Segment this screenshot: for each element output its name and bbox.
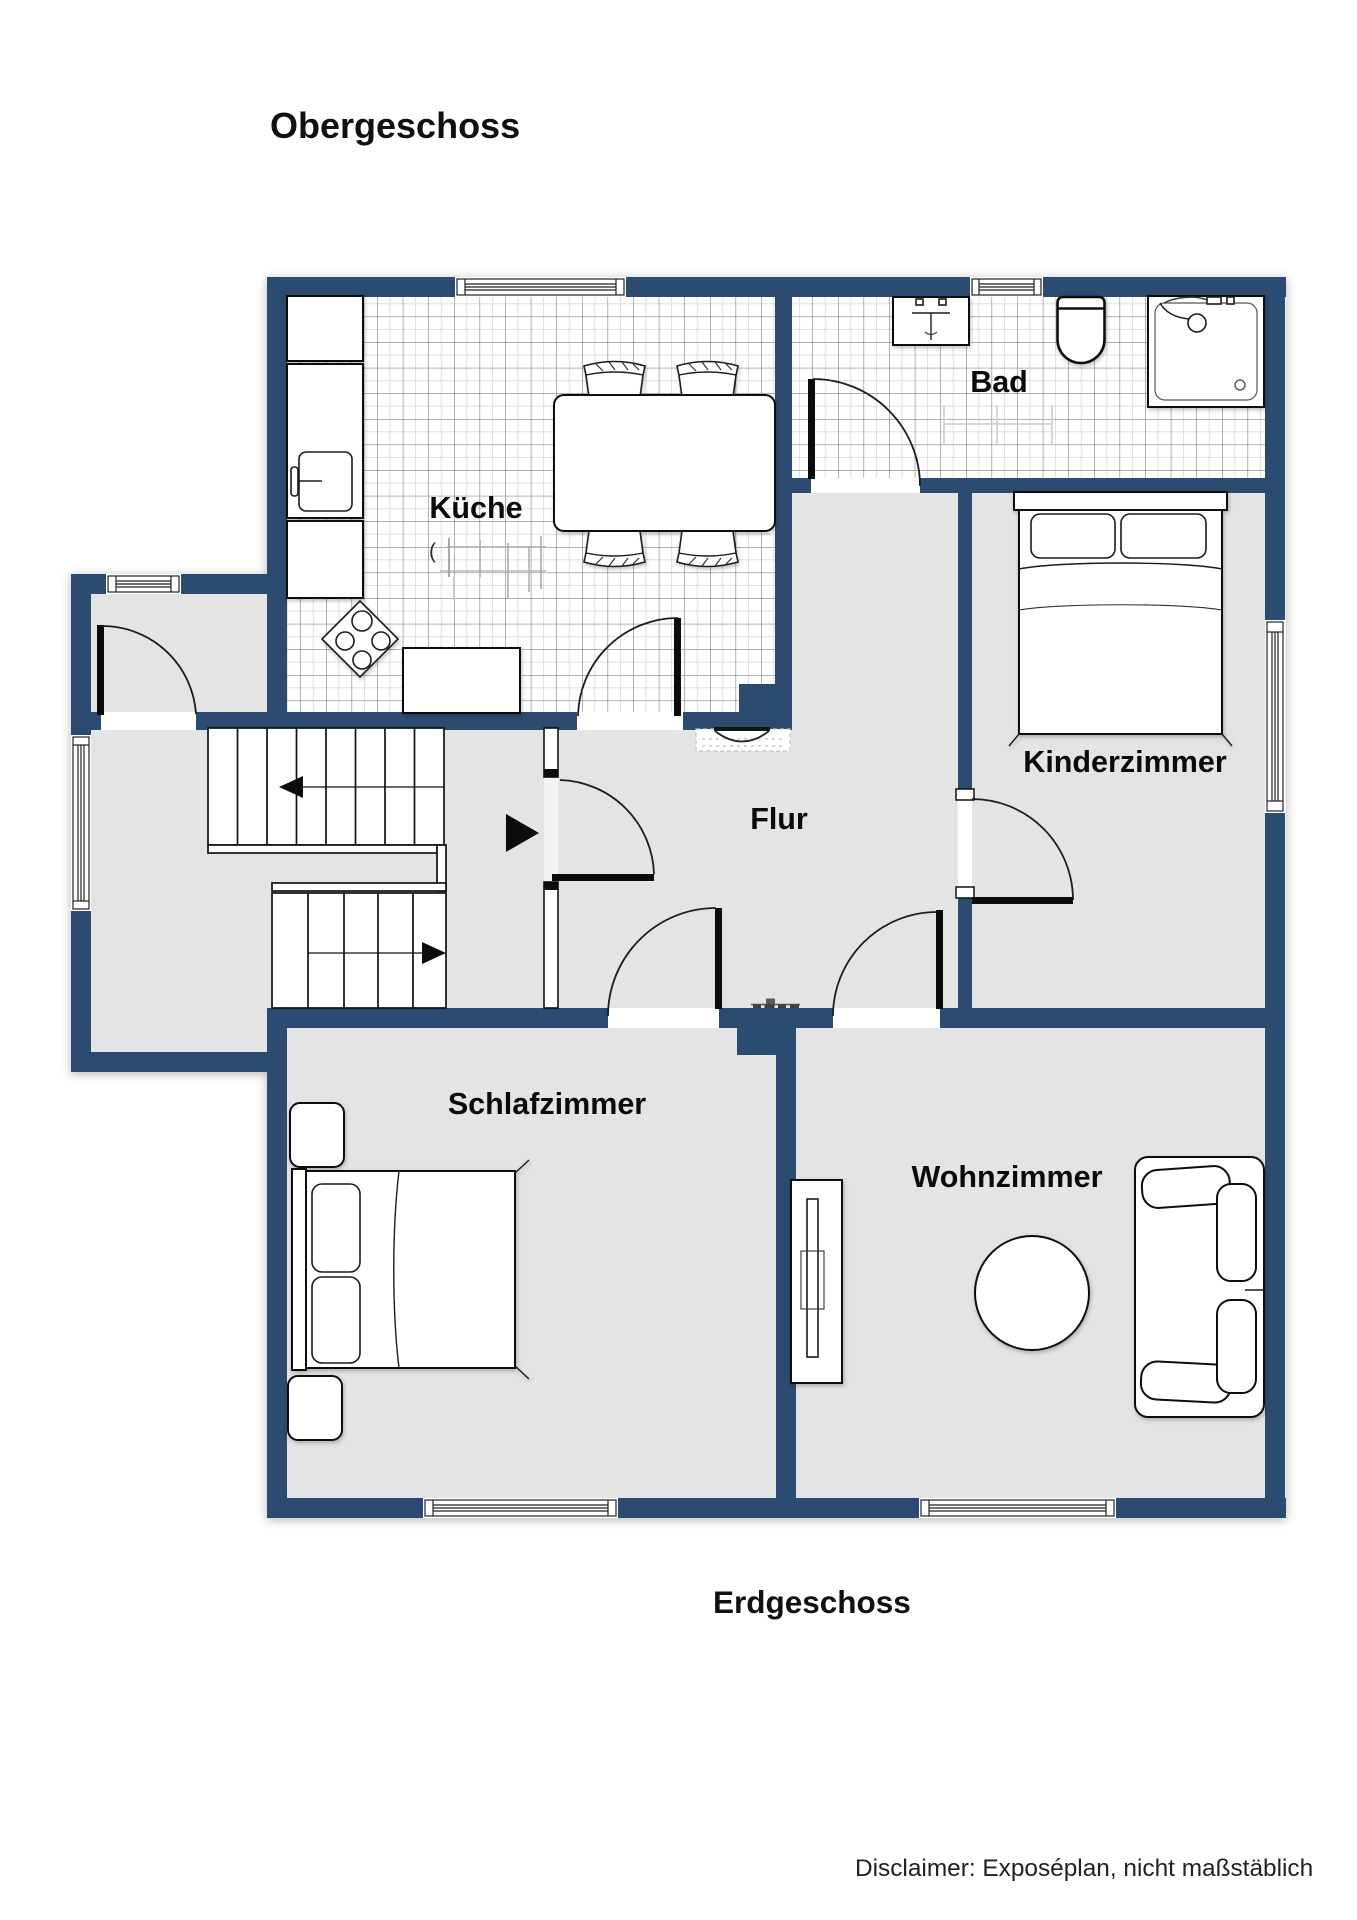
svg-text:Obergeschoss: Obergeschoss: [270, 105, 520, 146]
svg-text:Wohnzimmer: Wohnzimmer: [912, 1160, 1103, 1194]
svg-text:Küche: Küche: [429, 491, 522, 525]
svg-text:Erdgeschoss: Erdgeschoss: [713, 1584, 911, 1620]
svg-text:Disclaimer: Exposéplan, nicht: Disclaimer: Exposéplan, nicht maßstäblic…: [855, 1855, 1313, 1882]
svg-text:(: (: [429, 540, 436, 563]
svg-text:Bad: Bad: [970, 365, 1028, 399]
svg-text:Schlafzimmer: Schlafzimmer: [448, 1087, 646, 1121]
svg-text:Kinderzimmer: Kinderzimmer: [1023, 745, 1227, 779]
svg-text:Flur: Flur: [750, 802, 808, 836]
